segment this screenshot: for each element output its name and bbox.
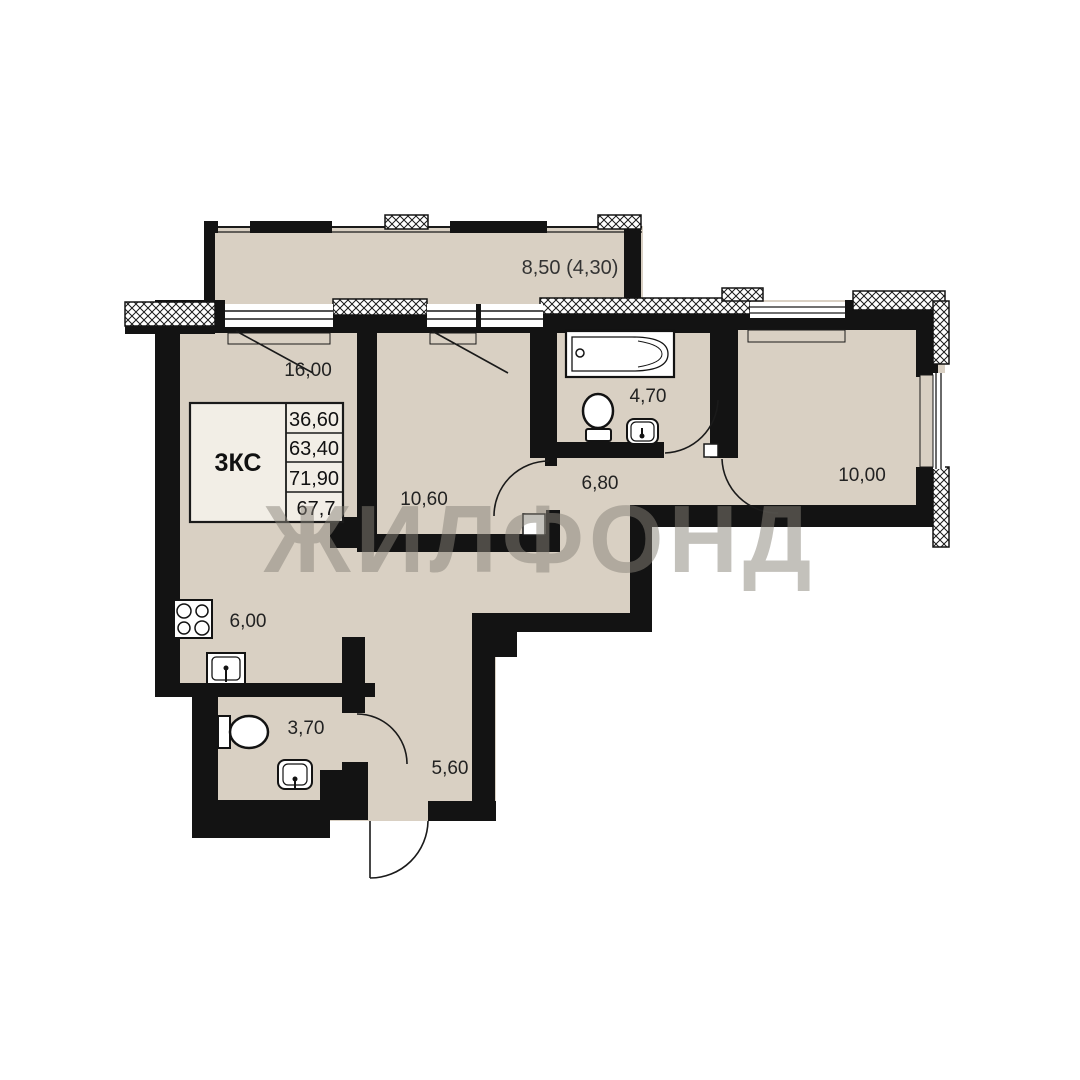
room-area-label-bathroom-top: 4,70 bbox=[630, 386, 667, 407]
balcony-hatched-block bbox=[385, 215, 428, 229]
wall bbox=[472, 617, 495, 821]
bathtub-icon bbox=[566, 331, 674, 377]
kitchen-sink-icon bbox=[207, 653, 245, 684]
room-area-label-balcony: 8,50 (4,30) bbox=[522, 257, 619, 279]
floor-plan-svg: 3КС 36,60 63,40 71,90 67,7 8,50 (4,30) 1… bbox=[0, 0, 1080, 1080]
watermark: ЖИЛФОНД bbox=[263, 486, 816, 593]
stove-icon bbox=[174, 600, 212, 638]
area-row-living: 36,60 bbox=[289, 409, 339, 431]
wall bbox=[342, 637, 365, 713]
area-row-total: 63,40 bbox=[289, 438, 339, 460]
floor-plan-page: 3КС 36,60 63,40 71,90 67,7 8,50 (4,30) 1… bbox=[0, 0, 1080, 1080]
entrance-door-arc bbox=[370, 821, 428, 878]
room-area-label-hallway-entrance: 5,60 bbox=[432, 758, 469, 779]
door-jamb bbox=[704, 444, 718, 457]
wall bbox=[342, 762, 368, 802]
room-area-label-bedroom-right: 10,00 bbox=[838, 465, 886, 486]
toilet-icon bbox=[583, 394, 613, 441]
wall bbox=[530, 315, 557, 455]
apartment-type-label: 3КС bbox=[215, 449, 262, 477]
wall bbox=[748, 318, 845, 330]
sink-icon bbox=[278, 760, 312, 789]
room-area-label-living: 16,00 bbox=[284, 360, 332, 381]
window bbox=[225, 304, 333, 344]
balcony-hatched-block bbox=[598, 215, 641, 229]
room-area-label-bathroom-lower: 3,70 bbox=[288, 718, 325, 739]
wall bbox=[710, 333, 738, 458]
room-area-label-kitchen: 6,00 bbox=[230, 611, 267, 632]
sink-icon bbox=[627, 419, 658, 444]
wall bbox=[192, 800, 330, 838]
window bbox=[920, 373, 945, 469]
toilet-icon bbox=[218, 716, 268, 748]
